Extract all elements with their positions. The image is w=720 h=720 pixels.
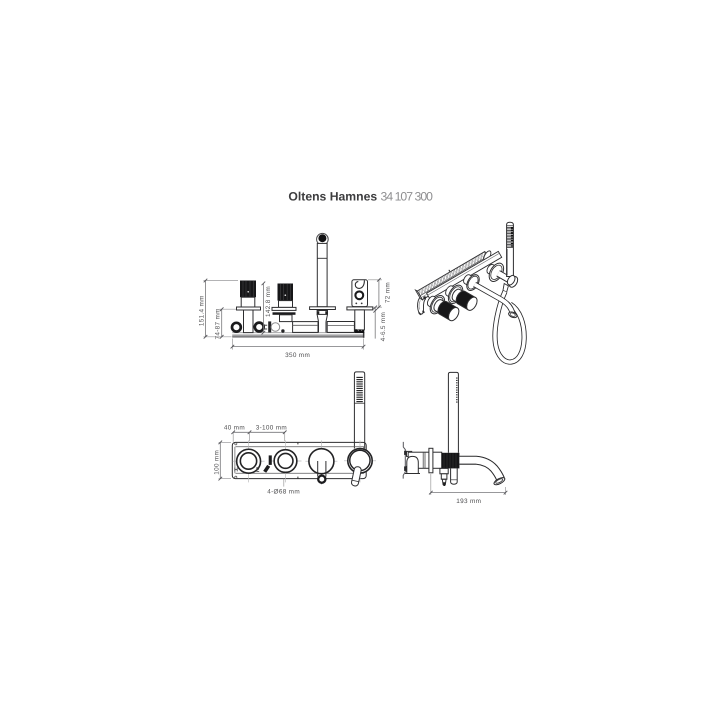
- svg-text:100 mm: 100 mm: [213, 450, 220, 475]
- svg-text:Oltens Hamnes 34 107 300: Oltens Hamnes 34 107 300: [288, 189, 433, 203]
- svg-text:193 mm: 193 mm: [456, 498, 481, 505]
- svg-text:74-87 mm: 74-87 mm: [215, 308, 222, 339]
- svg-text:40 mm: 40 mm: [224, 425, 245, 432]
- svg-text:350 mm: 350 mm: [285, 352, 310, 359]
- svg-text:4-6.5 mm: 4-6.5 mm: [380, 312, 387, 342]
- svg-text:4-Ø68 mm: 4-Ø68 mm: [267, 488, 300, 495]
- svg-text:151.4 mm: 151.4 mm: [198, 295, 205, 326]
- svg-text:142.8 mm: 142.8 mm: [265, 286, 272, 317]
- svg-text:3-100 mm: 3-100 mm: [256, 425, 287, 432]
- svg-text:72 mm: 72 mm: [384, 282, 391, 303]
